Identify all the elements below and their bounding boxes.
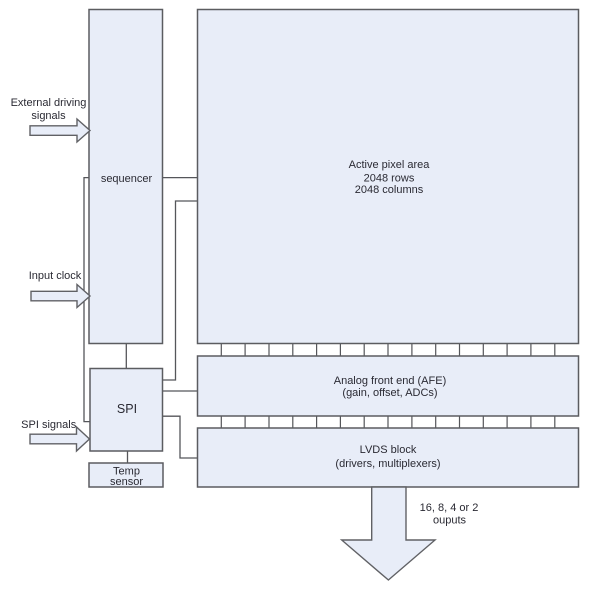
svg-text:Input clock: Input clock [29, 270, 82, 282]
svg-text:External driving: External driving [11, 97, 87, 109]
svg-text:LVDS block: LVDS block [360, 444, 417, 456]
svg-text:sensor: sensor [110, 476, 143, 488]
svg-text:2048 columns: 2048 columns [355, 184, 424, 196]
svg-text:SPI signals: SPI signals [21, 419, 77, 431]
svg-text:(gain, offset, ADCs): (gain, offset, ADCs) [342, 387, 437, 399]
svg-text:SPI: SPI [117, 402, 137, 416]
svg-text:2048 rows: 2048 rows [364, 173, 415, 185]
svg-text:ouputs: ouputs [433, 515, 467, 527]
svg-text:(drivers, multiplexers): (drivers, multiplexers) [335, 458, 440, 470]
svg-text:Analog front end (AFE): Analog front end (AFE) [334, 375, 447, 387]
svg-text:sequencer: sequencer [101, 173, 153, 185]
svg-text:16, 8, 4 or 2: 16, 8, 4 or 2 [420, 502, 479, 514]
svg-text:signals: signals [31, 110, 66, 122]
svg-text:Active pixel area: Active pixel area [349, 159, 431, 171]
